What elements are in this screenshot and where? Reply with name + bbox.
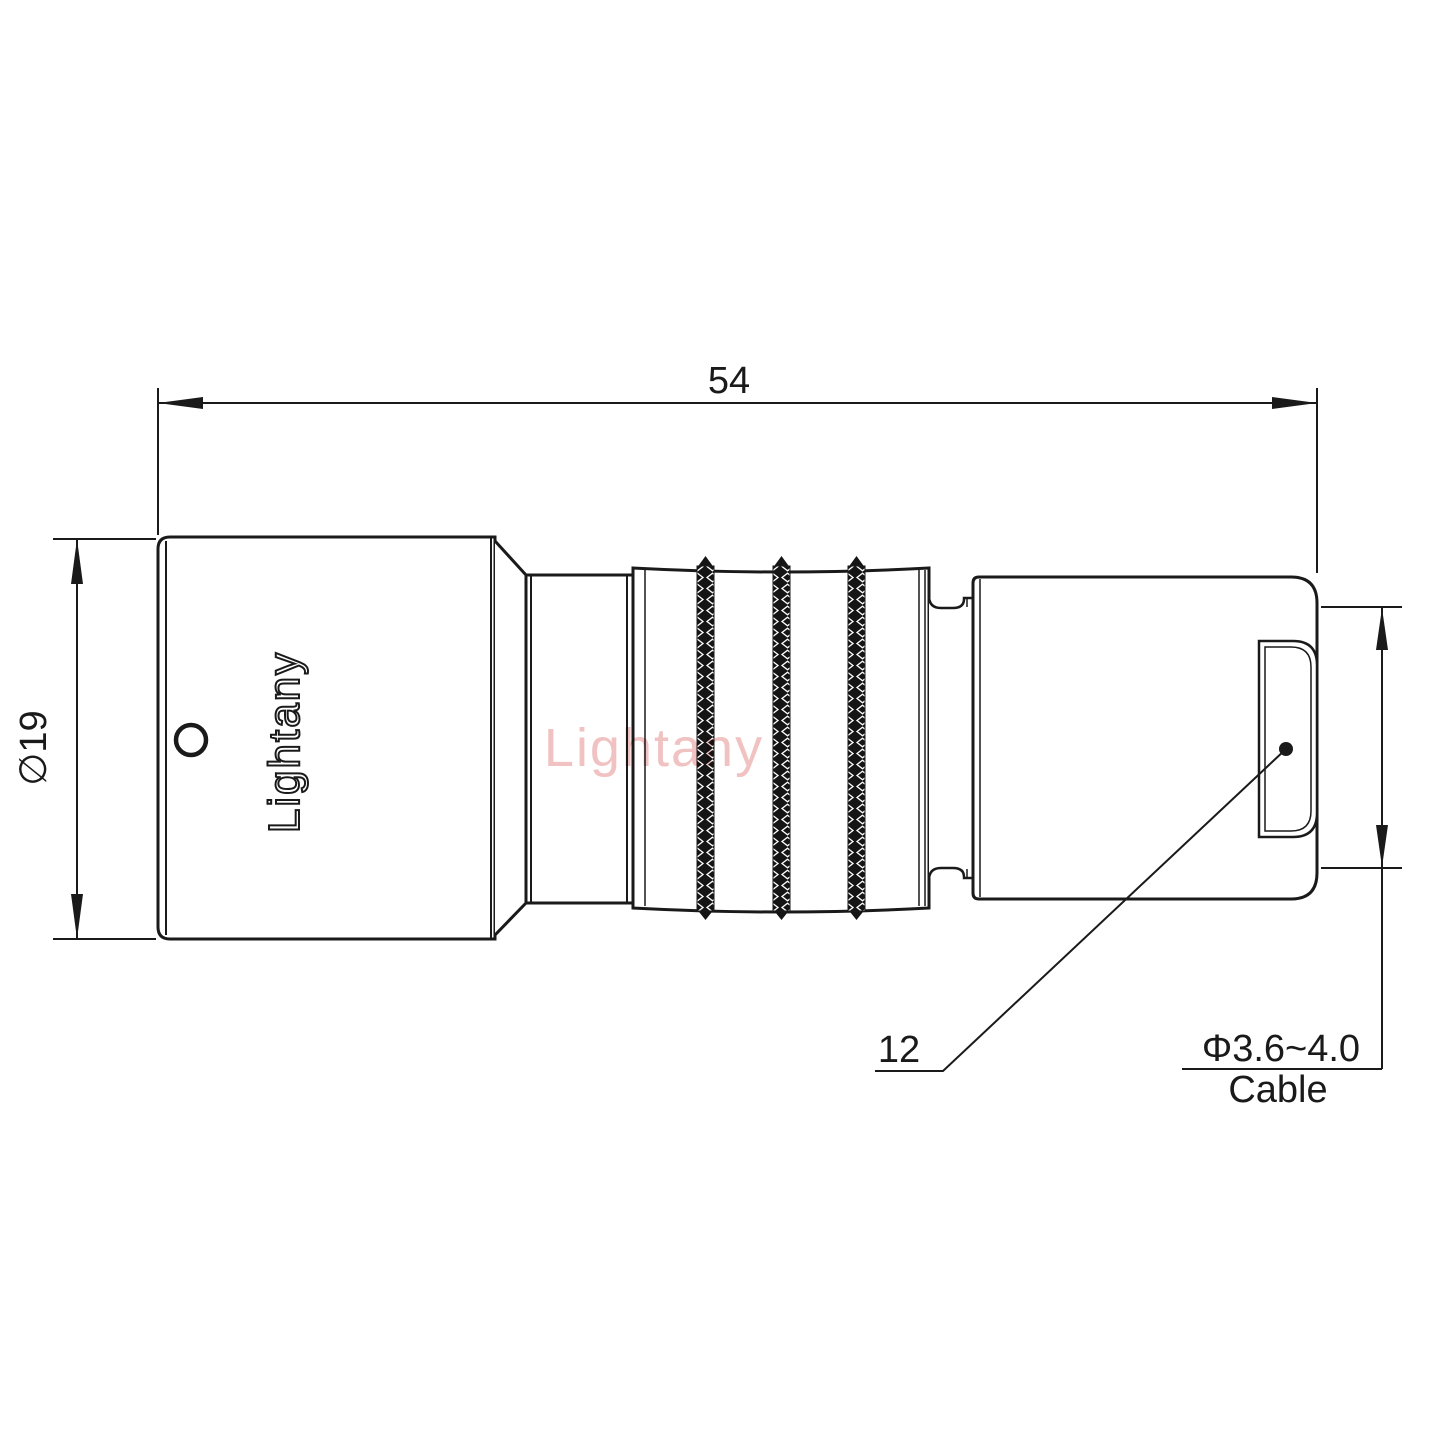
fixing-hole	[176, 725, 206, 755]
knurl-band-3	[848, 556, 865, 920]
knurl-band-2-strip	[773, 566, 790, 911]
dim-12-value: 12	[878, 1029, 920, 1071]
transition-cone	[495, 541, 526, 935]
watermark-text: Lightany	[544, 718, 764, 778]
cable-slot-outer-contour	[1259, 641, 1317, 837]
collet-neck-fill	[929, 598, 973, 878]
connector-technical-drawing: Lightany	[0, 0, 1440, 1440]
rear-shell: Lightany	[158, 537, 495, 939]
cable-note-diameter-range: Φ3.6~4.0	[1202, 1028, 1360, 1070]
knurl-band-2	[773, 556, 790, 920]
cable-note-label: Cable	[1228, 1069, 1327, 1111]
transition-cone-fill	[495, 541, 526, 935]
brand-engraving-text: Lightany	[260, 651, 309, 833]
dim-12-leader-dot	[1279, 742, 1293, 756]
rear-shell-outline	[158, 537, 495, 939]
knurl-band-3-strip	[848, 566, 865, 911]
dim-54-value: 54	[708, 360, 750, 402]
collet-neck	[929, 596, 973, 880]
cable-nut	[973, 577, 1317, 899]
dim-19-value: ∅19	[13, 710, 55, 785]
